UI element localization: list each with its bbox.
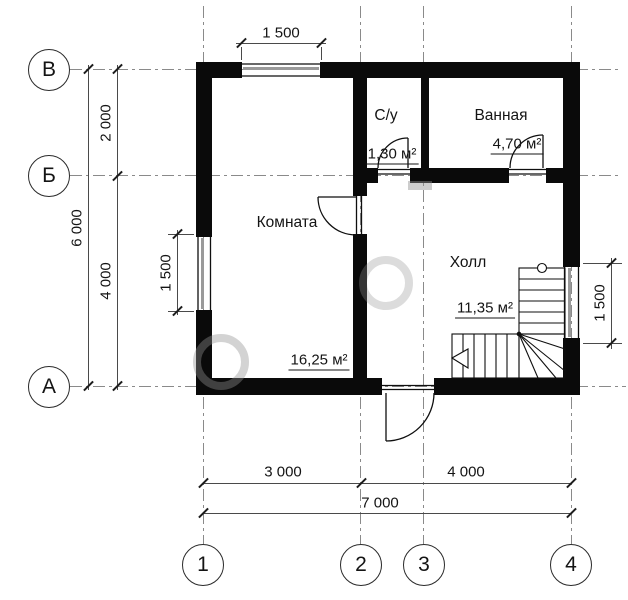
stair-start-marker (538, 264, 547, 273)
room-label-hall: Холл (450, 254, 487, 272)
dim-top-window: 1 500 (262, 25, 300, 42)
axis-circle-col-4: 4 (550, 544, 592, 586)
room-label-bathroom: Ванная (474, 107, 527, 125)
stair-direction-arrow (452, 349, 468, 368)
axis-circle-col-2: 2 (340, 544, 382, 586)
axis-circle-row-a: А (28, 366, 70, 408)
stair-winder-hub (517, 332, 521, 336)
room-area-hall: 11,35 м² (455, 300, 515, 319)
axis-circle-row-v: В (28, 49, 70, 91)
dim-bottom-left: 3 000 (264, 464, 302, 481)
window-top (242, 64, 320, 76)
axis-label: 4 (565, 553, 577, 577)
dim-left-upper: 2 000 (98, 104, 115, 142)
staircase (452, 264, 565, 379)
dim-left-lower: 4 000 (98, 262, 115, 300)
dim-left-window: 1 500 (158, 254, 175, 292)
room-label-wc: С/у (374, 107, 397, 125)
dim-left-total: 6 000 (69, 209, 86, 247)
axis-label: 1 (197, 553, 209, 577)
dim-bottom-right: 4 000 (447, 464, 485, 481)
axis-label: 2 (355, 553, 367, 577)
door-room (318, 196, 362, 235)
door-entrance (382, 386, 434, 442)
axis-circle-col-3: 3 (403, 544, 445, 586)
axis-circle-col-1: 1 (182, 544, 224, 586)
axis-label: В (42, 58, 56, 82)
dim-bottom-total: 7 000 (361, 495, 399, 512)
axis-label: А (42, 375, 56, 399)
room-area-wc: 1,30 м² (366, 146, 419, 165)
room-label-komnata: Комната (257, 214, 318, 232)
window-right (565, 267, 579, 338)
floor-plan: Комната 16,25 м² С/у 1,30 м² Ванная 4,70… (0, 0, 628, 600)
axis-label: 3 (418, 553, 430, 577)
dim-right-window: 1 500 (592, 284, 609, 322)
axis-circle-row-b: Б (28, 155, 70, 197)
room-area-bathroom: 4,70 м² (491, 136, 544, 155)
axis-label: Б (42, 164, 56, 188)
room-area-komnata: 16,25 м² (288, 352, 349, 371)
plan-linework (0, 0, 628, 600)
window-left (198, 237, 211, 310)
